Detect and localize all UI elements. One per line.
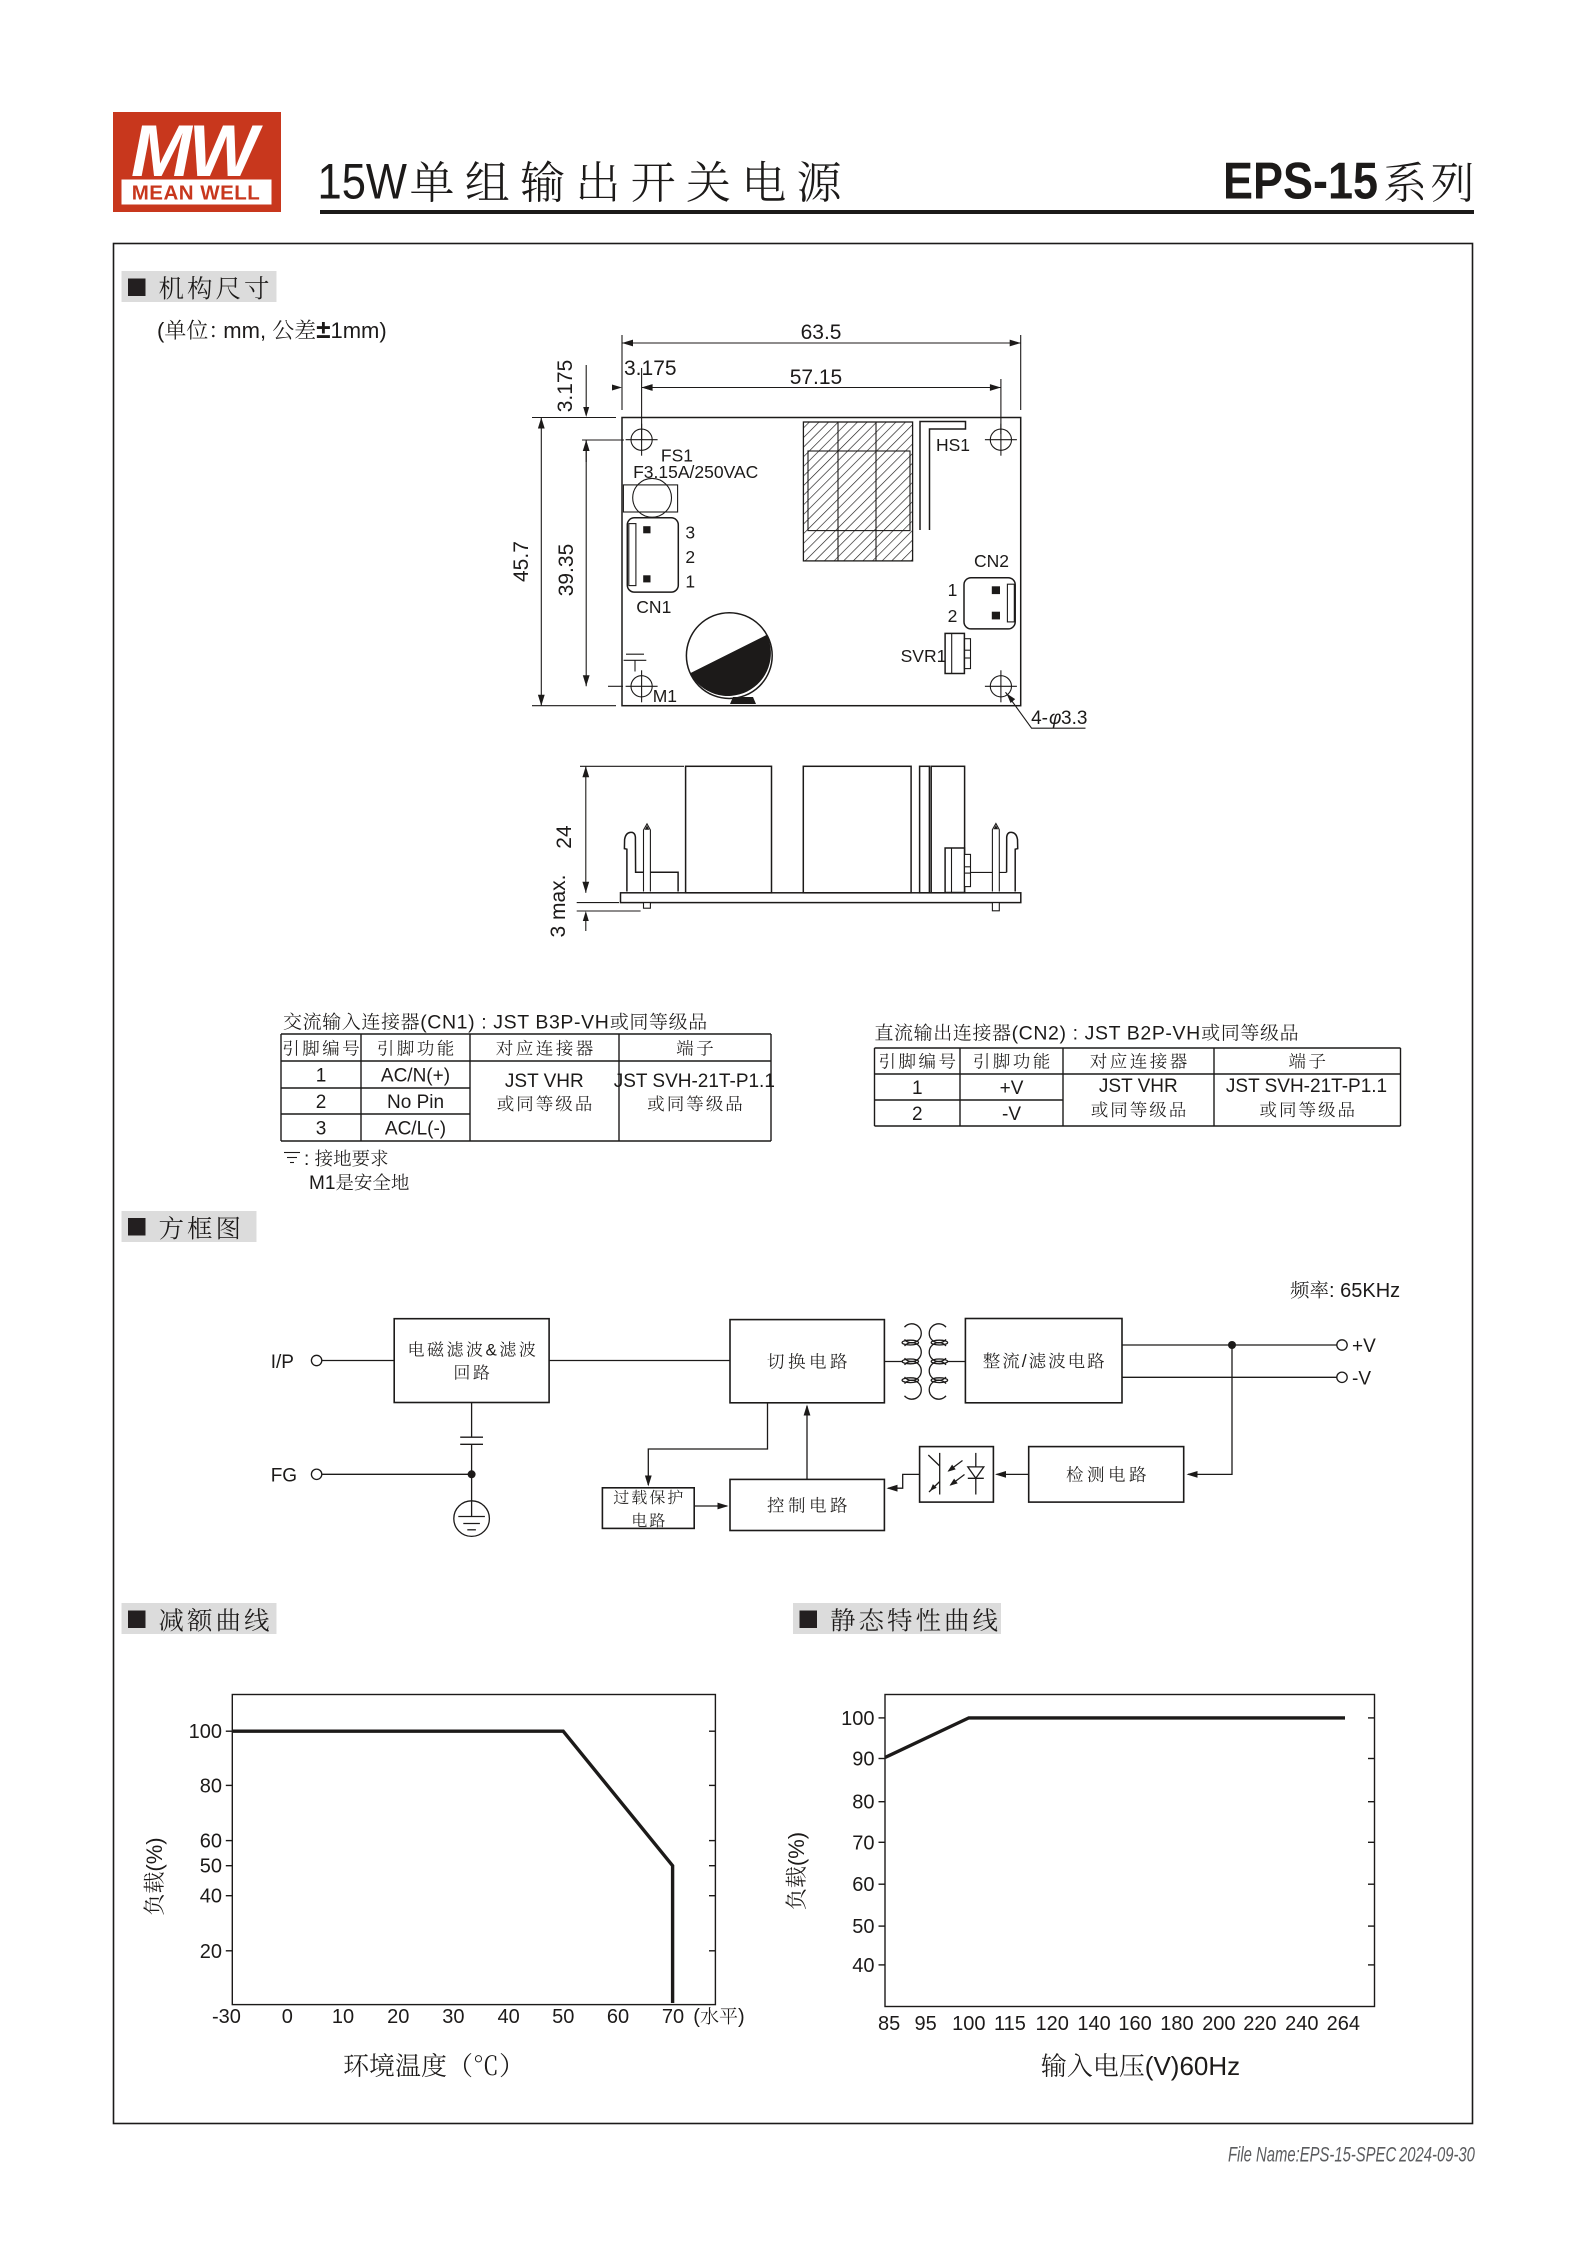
svg-text:57.15: 57.15 <box>790 366 843 389</box>
svg-text:-V: -V <box>1352 1368 1371 1389</box>
svg-text:±: ± <box>316 314 330 344</box>
svg-text:100: 100 <box>189 1721 222 1743</box>
svg-text:80: 80 <box>200 1775 222 1797</box>
svg-text:3: 3 <box>316 1119 327 1140</box>
svg-text:φ: φ <box>1049 708 1061 729</box>
svg-text:SVR1: SVR1 <box>901 646 947 666</box>
svg-text:JST VHR: JST VHR <box>1099 1076 1178 1097</box>
svg-text:2024-09-30: 2024-09-30 <box>1398 2142 1475 2166</box>
svg-text:70: 70 <box>852 1832 874 1854</box>
svg-text:MEAN WELL: MEAN WELL <box>132 182 261 205</box>
svg-text:2: 2 <box>912 1104 923 1125</box>
svg-text:50: 50 <box>200 1856 222 1878</box>
svg-text:I/P: I/P <box>271 1352 294 1373</box>
svg-text:140: 140 <box>1077 2013 1110 2035</box>
svg-text:60: 60 <box>200 1831 222 1853</box>
svg-text:3.175: 3.175 <box>624 357 677 380</box>
svg-text:90: 90 <box>852 1749 874 1771</box>
svg-text:(: ( <box>693 2006 700 2028</box>
svg-text:No Pin: No Pin <box>387 1092 444 1113</box>
svg-text:&: & <box>486 1341 500 1360</box>
svg-text:180: 180 <box>1160 2013 1193 2035</box>
svg-text:JST SVH-21T-P1.1: JST SVH-21T-P1.1 <box>1226 1076 1387 1097</box>
svg-text:1: 1 <box>316 1066 327 1087</box>
svg-text:24: 24 <box>553 825 576 849</box>
svg-text:60: 60 <box>607 2006 629 2028</box>
svg-text:4-: 4- <box>1031 708 1048 729</box>
svg-text:60: 60 <box>852 1874 874 1896</box>
svg-text:+V: +V <box>1000 1078 1024 1099</box>
svg-text:15W: 15W <box>318 154 408 209</box>
svg-text:220: 220 <box>1243 2013 1276 2035</box>
svg-text:3.175: 3.175 <box>554 360 577 413</box>
svg-text:100: 100 <box>952 2013 985 2035</box>
svg-text:/: / <box>1022 1351 1029 1371</box>
svg-text:): ) <box>738 2006 745 2028</box>
svg-text:mm,: mm, <box>223 318 266 343</box>
svg-text:264: 264 <box>1327 2013 1360 2035</box>
svg-text:(%): (%) <box>784 1832 809 1866</box>
svg-text:40: 40 <box>200 1886 222 1908</box>
svg-text:240: 240 <box>1285 2013 1318 2035</box>
svg-text:2: 2 <box>316 1092 327 1113</box>
svg-text:3 max.: 3 max. <box>547 874 570 937</box>
svg-text:70: 70 <box>662 2006 684 2028</box>
svg-text:95: 95 <box>915 2013 937 2035</box>
svg-text:3.3: 3.3 <box>1061 708 1087 729</box>
svg-text:2: 2 <box>685 547 695 567</box>
svg-text:20: 20 <box>387 2006 409 2028</box>
svg-text:0: 0 <box>282 2006 293 2028</box>
svg-text:: 65KHz: : 65KHz <box>1329 1280 1400 1302</box>
svg-text:F3.15A/250VAC: F3.15A/250VAC <box>633 462 758 482</box>
svg-text:-30: -30 <box>212 2006 241 2028</box>
svg-text:JST SVH-21T-P1.1: JST SVH-21T-P1.1 <box>614 1071 775 1092</box>
svg-text:50: 50 <box>852 1916 874 1938</box>
svg-text:85: 85 <box>878 2013 900 2035</box>
svg-text:EPS-15: EPS-15 <box>1223 153 1378 211</box>
svg-text:1: 1 <box>948 580 958 600</box>
svg-text::: : <box>304 1149 309 1170</box>
svg-text:(V)60Hz: (V)60Hz <box>1145 2051 1240 2081</box>
svg-text:100: 100 <box>841 1708 874 1730</box>
svg-text:(%): (%) <box>142 1837 167 1871</box>
svg-text:45.7: 45.7 <box>510 541 533 582</box>
svg-text:63.5: 63.5 <box>801 321 842 344</box>
svg-text:10: 10 <box>332 2006 354 2028</box>
svg-text:40: 40 <box>852 1955 874 1977</box>
svg-text:1: 1 <box>912 1078 923 1099</box>
svg-text:M1: M1 <box>653 686 677 706</box>
svg-text:2: 2 <box>948 606 958 626</box>
svg-text:160: 160 <box>1118 2013 1151 2035</box>
svg-text:AC/L(-): AC/L(-) <box>385 1119 446 1140</box>
svg-text:(CN2) : JST B2P-VH: (CN2) : JST B2P-VH <box>1012 1023 1201 1045</box>
svg-text:120: 120 <box>1036 2013 1069 2035</box>
svg-text:HS1: HS1 <box>936 435 970 455</box>
svg-text:115: 115 <box>994 2013 1026 2035</box>
svg-text:File Name:EPS-15-SPEC: File Name:EPS-15-SPEC <box>1228 2142 1397 2166</box>
svg-text:FG: FG <box>271 1466 297 1487</box>
svg-text:+V: +V <box>1352 1336 1376 1357</box>
svg-text:20: 20 <box>200 1941 222 1963</box>
svg-text:40: 40 <box>498 2006 520 2028</box>
svg-text:1mm): 1mm) <box>331 318 387 343</box>
svg-text:M1: M1 <box>309 1173 335 1194</box>
svg-text:AC/N(+): AC/N(+) <box>381 1066 450 1087</box>
svg-text:80: 80 <box>852 1792 874 1814</box>
svg-text:-V: -V <box>1002 1104 1021 1125</box>
svg-text:(CN1) : JST B3P-VH: (CN1) : JST B3P-VH <box>420 1012 609 1034</box>
svg-text:200: 200 <box>1202 2013 1235 2035</box>
svg-text:CN1: CN1 <box>636 597 671 617</box>
svg-text:(: ( <box>157 318 165 343</box>
svg-text:50: 50 <box>552 2006 574 2028</box>
svg-text:JST VHR: JST VHR <box>505 1071 584 1092</box>
svg-text:3: 3 <box>685 523 695 543</box>
svg-text:1: 1 <box>685 572 695 592</box>
svg-text:CN2: CN2 <box>974 551 1009 571</box>
svg-text:30: 30 <box>442 2006 464 2028</box>
svg-text:39.35: 39.35 <box>555 544 578 597</box>
